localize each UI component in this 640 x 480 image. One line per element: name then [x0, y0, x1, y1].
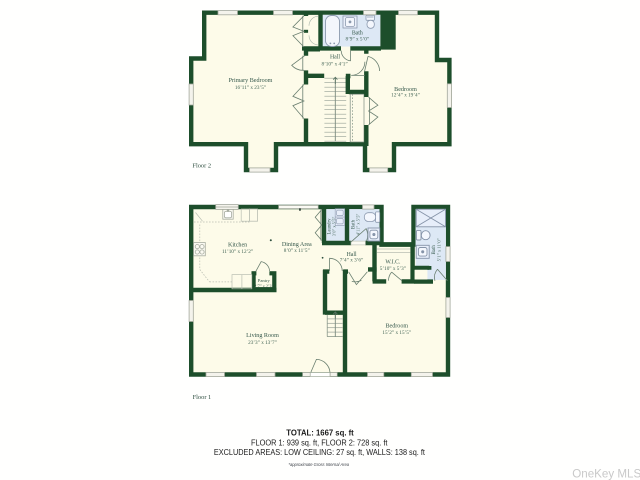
- svg-text:Floor 2: Floor 2: [192, 162, 211, 169]
- svg-text:11’10” x 12’2”: 11’10” x 12’2”: [222, 249, 254, 255]
- svg-text:FLOOR 1: 939 sq. ft, FLOOR 2:: FLOOR 1: 939 sq. ft, FLOOR 2: 728 sq. ft: [251, 437, 388, 447]
- svg-text:8’0” x 11’5”: 8’0” x 11’5”: [284, 248, 311, 254]
- svg-text:5’10” x 5’3”: 5’10” x 5’3”: [380, 266, 407, 272]
- svg-text:15’2” x 15’5”: 15’2” x 15’5”: [382, 330, 412, 336]
- svg-text:8’10” x 4’1”: 8’10” x 4’1”: [321, 61, 348, 67]
- svg-text:OneKey MLS: OneKey MLS: [572, 467, 640, 480]
- svg-text:TOTAL: 1667 sq. ft: TOTAL: 1667 sq. ft: [286, 429, 354, 438]
- svg-text:Dining Area: Dining Area: [282, 242, 312, 248]
- svg-text:5’1” x 11’0”: 5’1” x 11’0”: [437, 238, 442, 261]
- svg-text:3’0” x 5’5”: 3’0” x 5’5”: [332, 217, 337, 237]
- svg-text:2’7” x 2’3”: 2’7” x 2’3”: [254, 283, 273, 288]
- svg-text:8’9” x 5’0”: 8’9” x 5’0”: [345, 36, 369, 42]
- svg-text:Bedroom: Bedroom: [385, 323, 408, 329]
- svg-text:Primary Bedroom: Primary Bedroom: [229, 78, 273, 84]
- svg-text:Living Room: Living Room: [246, 333, 279, 339]
- svg-text:23’3” x 13’7”: 23’3” x 13’7”: [248, 340, 278, 346]
- svg-text:Floor 1: Floor 1: [193, 394, 212, 401]
- svg-text:EXCLUDED AREAS: LOW CEILING: 2: EXCLUDED AREAS: LOW CEILING: 27 sq. ft, …: [214, 447, 426, 457]
- svg-text:16’11” x 23’5”: 16’11” x 23’5”: [235, 85, 267, 91]
- svg-text:Kitchen: Kitchen: [228, 243, 247, 249]
- svg-text:*approximate Gross Internal Ar: *approximate Gross Internal Area: [288, 462, 349, 468]
- svg-text:Pantry: Pantry: [258, 278, 271, 283]
- svg-text:W.I.C.: W.I.C.: [385, 260, 401, 266]
- svg-text:12’4” x 19’4”: 12’4” x 19’4”: [391, 92, 421, 98]
- svg-text:4’11” x 5’5”: 4’11” x 5’5”: [356, 214, 361, 236]
- svg-text:Hall: Hall: [330, 55, 340, 61]
- svg-text:7’4” x 3’6”: 7’4” x 3’6”: [340, 258, 364, 264]
